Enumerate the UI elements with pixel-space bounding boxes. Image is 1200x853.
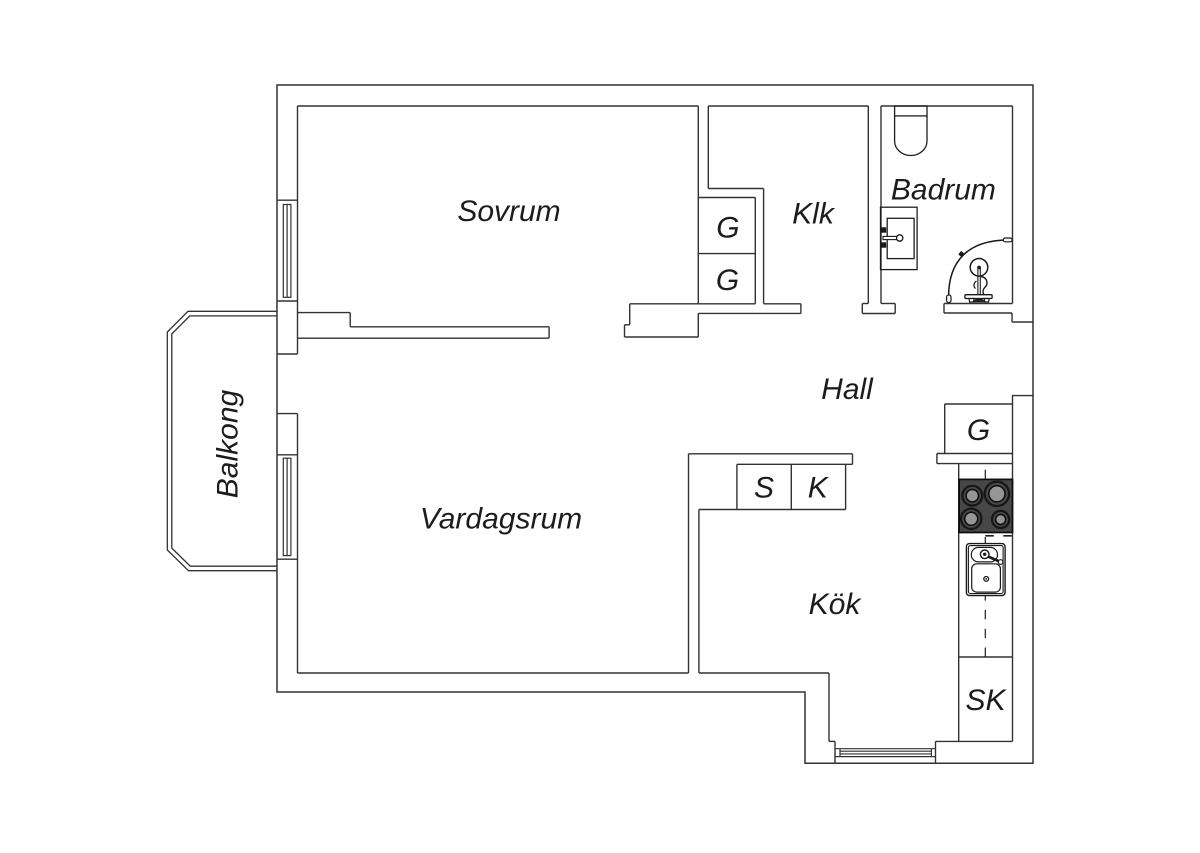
svg-text:K: K (808, 472, 830, 505)
svg-text:Vardagsrum: Vardagsrum (420, 503, 582, 536)
svg-text:SK: SK (965, 684, 1007, 717)
svg-text:G: G (716, 212, 739, 245)
svg-text:Balkong: Balkong (212, 389, 245, 498)
svg-text:Hall: Hall (821, 373, 874, 406)
svg-text:S: S (754, 472, 774, 505)
svg-text:Kök: Kök (809, 588, 863, 621)
svg-text:Sovrum: Sovrum (457, 195, 560, 228)
svg-text:G: G (967, 414, 990, 447)
svg-text:Badrum: Badrum (891, 174, 996, 207)
svg-text:G: G (716, 264, 739, 297)
svg-text:Klk: Klk (792, 197, 836, 230)
